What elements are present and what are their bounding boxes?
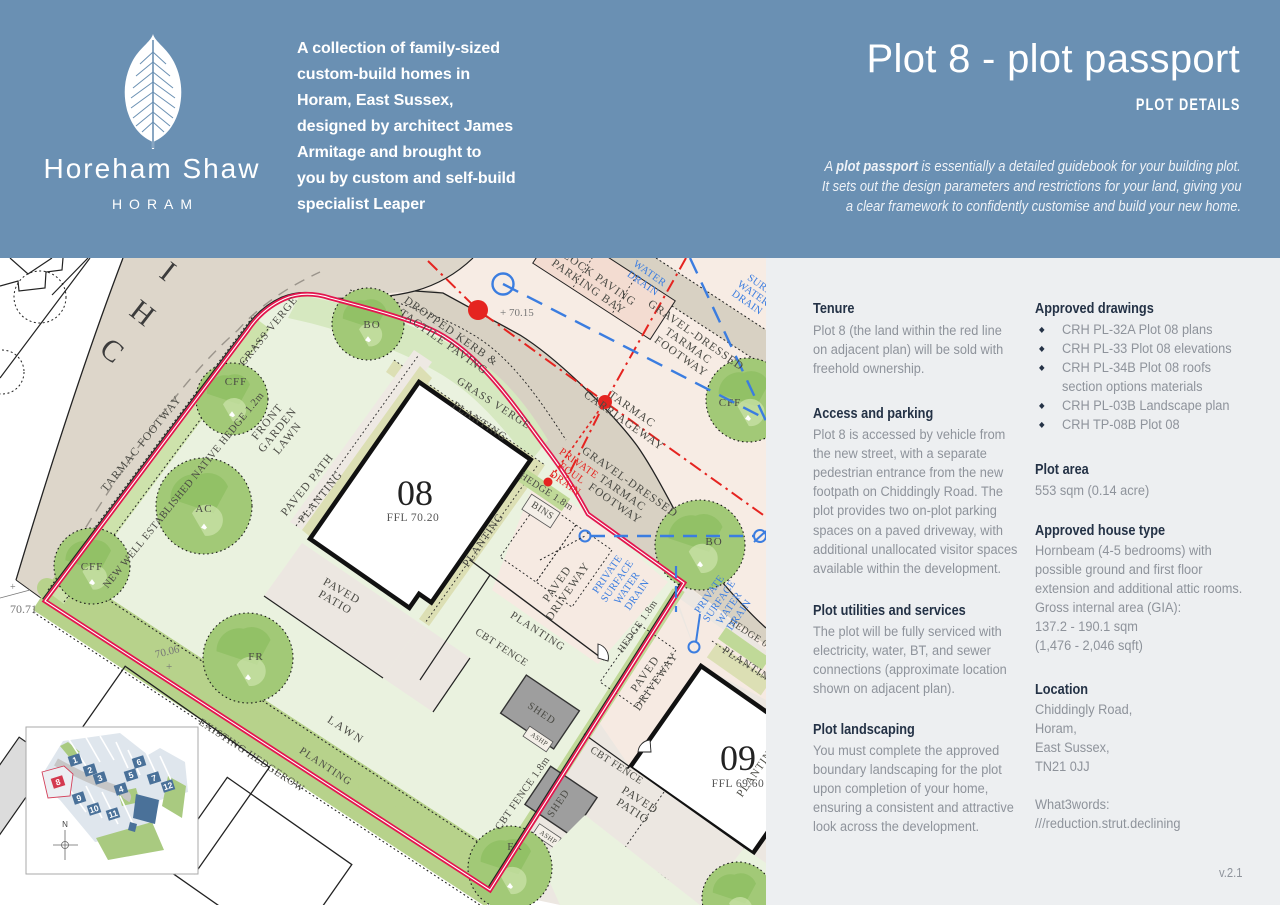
svg-text:CFF: CFF [81,561,104,573]
svg-text:08: 08 [397,473,433,513]
svg-text:CFF: CFF [719,397,742,409]
svg-text:+: + [166,661,172,673]
svg-text:BO: BO [363,319,380,331]
svg-text:FR: FR [248,651,263,663]
svg-text:CFF: CFF [225,376,248,388]
svg-text:70.71: 70.71 [10,602,37,616]
svg-text:BO: BO [705,536,722,548]
svg-text:FFL 70.20: FFL 70.20 [387,512,440,524]
svg-text:FFL 69.60: FFL 69.60 [712,778,765,790]
svg-text:AC: AC [195,503,212,515]
svg-text:+ 70.15: + 70.15 [500,307,534,319]
svg-text:N: N [62,820,68,829]
svg-text:+: + [10,582,16,593]
svg-text:09: 09 [720,738,756,778]
